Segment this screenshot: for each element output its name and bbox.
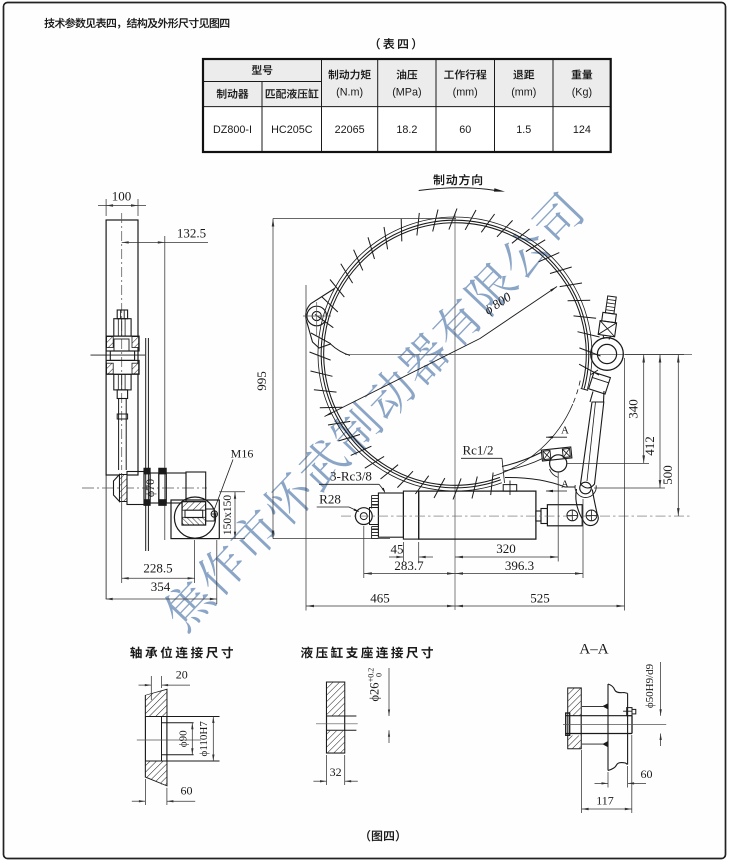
svg-text:1.5: 1.5 [516,124,531,136]
svg-text:320: 320 [496,541,516,556]
svg-text:500: 500 [660,465,675,485]
svg-text:132.5: 132.5 [177,226,206,241]
svg-text:(N.m): (N.m) [336,86,363,98]
svg-text:22065: 22065 [335,124,365,136]
svg-text:3-Rc3/8: 3-Rc3/8 [330,469,372,484]
svg-text:117: 117 [596,793,614,807]
svg-text:ϕ26: ϕ26 [368,682,382,701]
svg-text:ϕ110H7: ϕ110H7 [198,721,210,757]
svg-text:0: 0 [375,673,384,677]
svg-text:Rc1/2: Rc1/2 [462,443,493,458]
svg-text:465: 465 [370,591,390,606]
svg-text:340: 340 [626,399,641,419]
svg-text:995: 995 [254,371,269,391]
svg-text:20: 20 [176,668,188,682]
svg-text:A: A [561,479,569,491]
svg-text:32: 32 [330,765,342,779]
svg-text:60: 60 [459,124,471,136]
svg-text:A: A [561,425,569,437]
svg-text:(mm): (mm) [453,86,478,98]
svg-text:18.2: 18.2 [396,124,417,136]
svg-text:ϕ90: ϕ90 [177,730,189,747]
svg-text:60: 60 [181,784,193,798]
svg-text:396.3: 396.3 [505,558,534,573]
svg-text:100: 100 [112,189,132,204]
svg-text:150x150: 150x150 [222,495,234,536]
svg-text:124: 124 [573,124,591,136]
svg-text:45: 45 [391,542,404,557]
svg-text:(MPa): (MPa) [392,86,421,98]
svg-text:ϕ50H9/d9: ϕ50H9/d9 [644,663,656,708]
svg-text:283.7: 283.7 [394,558,424,573]
svg-text:(mm): (mm) [511,86,536,98]
svg-text:ϕ70: ϕ70 [143,479,157,497]
svg-text:DZ800-I: DZ800-I [213,124,252,136]
svg-text:354: 354 [151,579,171,594]
svg-text:R28: R28 [319,492,341,507]
svg-text:228.5: 228.5 [143,561,172,576]
svg-text:60: 60 [641,767,653,781]
svg-text:412: 412 [642,436,657,456]
svg-text:(Kg): (Kg) [572,86,592,98]
svg-text:M16: M16 [231,447,254,461]
svg-text:525: 525 [530,591,550,606]
svg-text:A–A: A–A [579,642,608,658]
svg-text:HC205C: HC205C [271,124,313,136]
